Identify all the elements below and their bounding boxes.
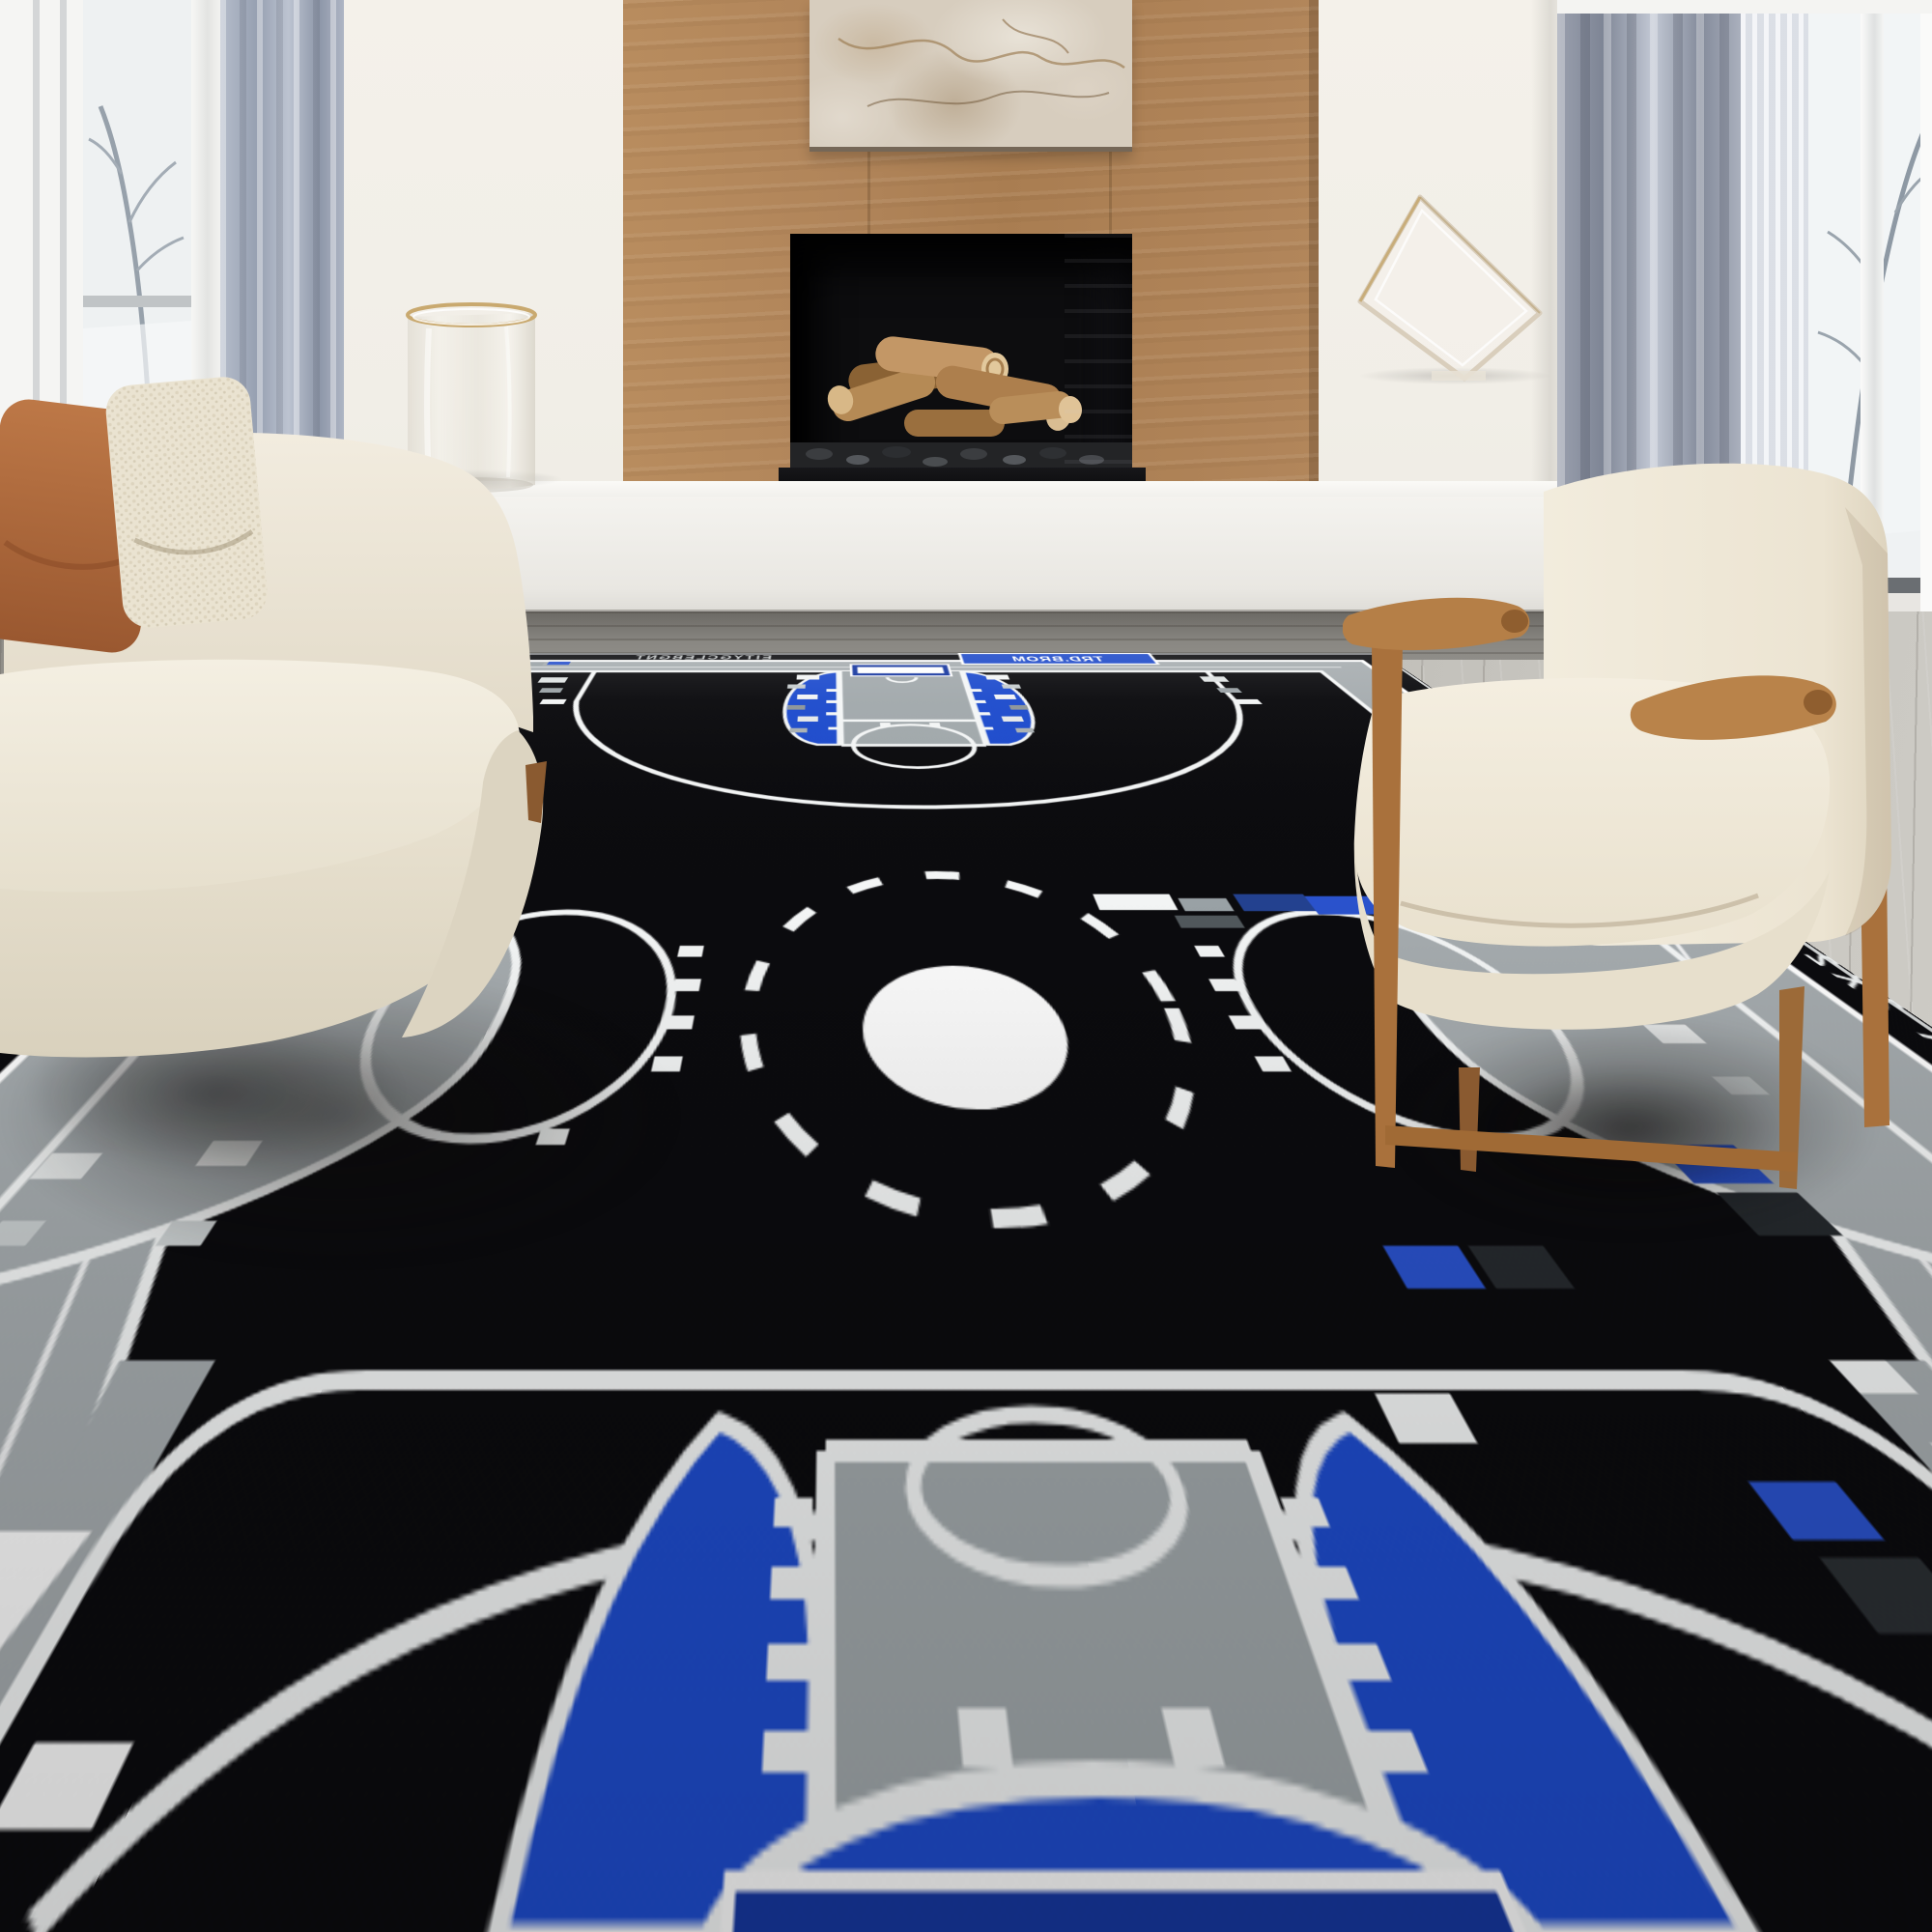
sofa-leg <box>526 761 547 823</box>
chair-front-post <box>1372 640 1403 1168</box>
chair-left-rear-leg <box>1459 1067 1480 1172</box>
chair-armrest-left <box>1343 598 1529 650</box>
living-room-scene: EITYGCLEBGNT TRD.BROM NWA 2X2 @ OX2 TYWN… <box>0 0 1932 1932</box>
pillow-boucle <box>103 377 269 630</box>
sofa <box>0 377 555 1077</box>
chair-stretcher <box>1385 1125 1797 1172</box>
glass-diamond-sculpture <box>1350 189 1549 388</box>
armchair <box>1343 449 1908 1198</box>
